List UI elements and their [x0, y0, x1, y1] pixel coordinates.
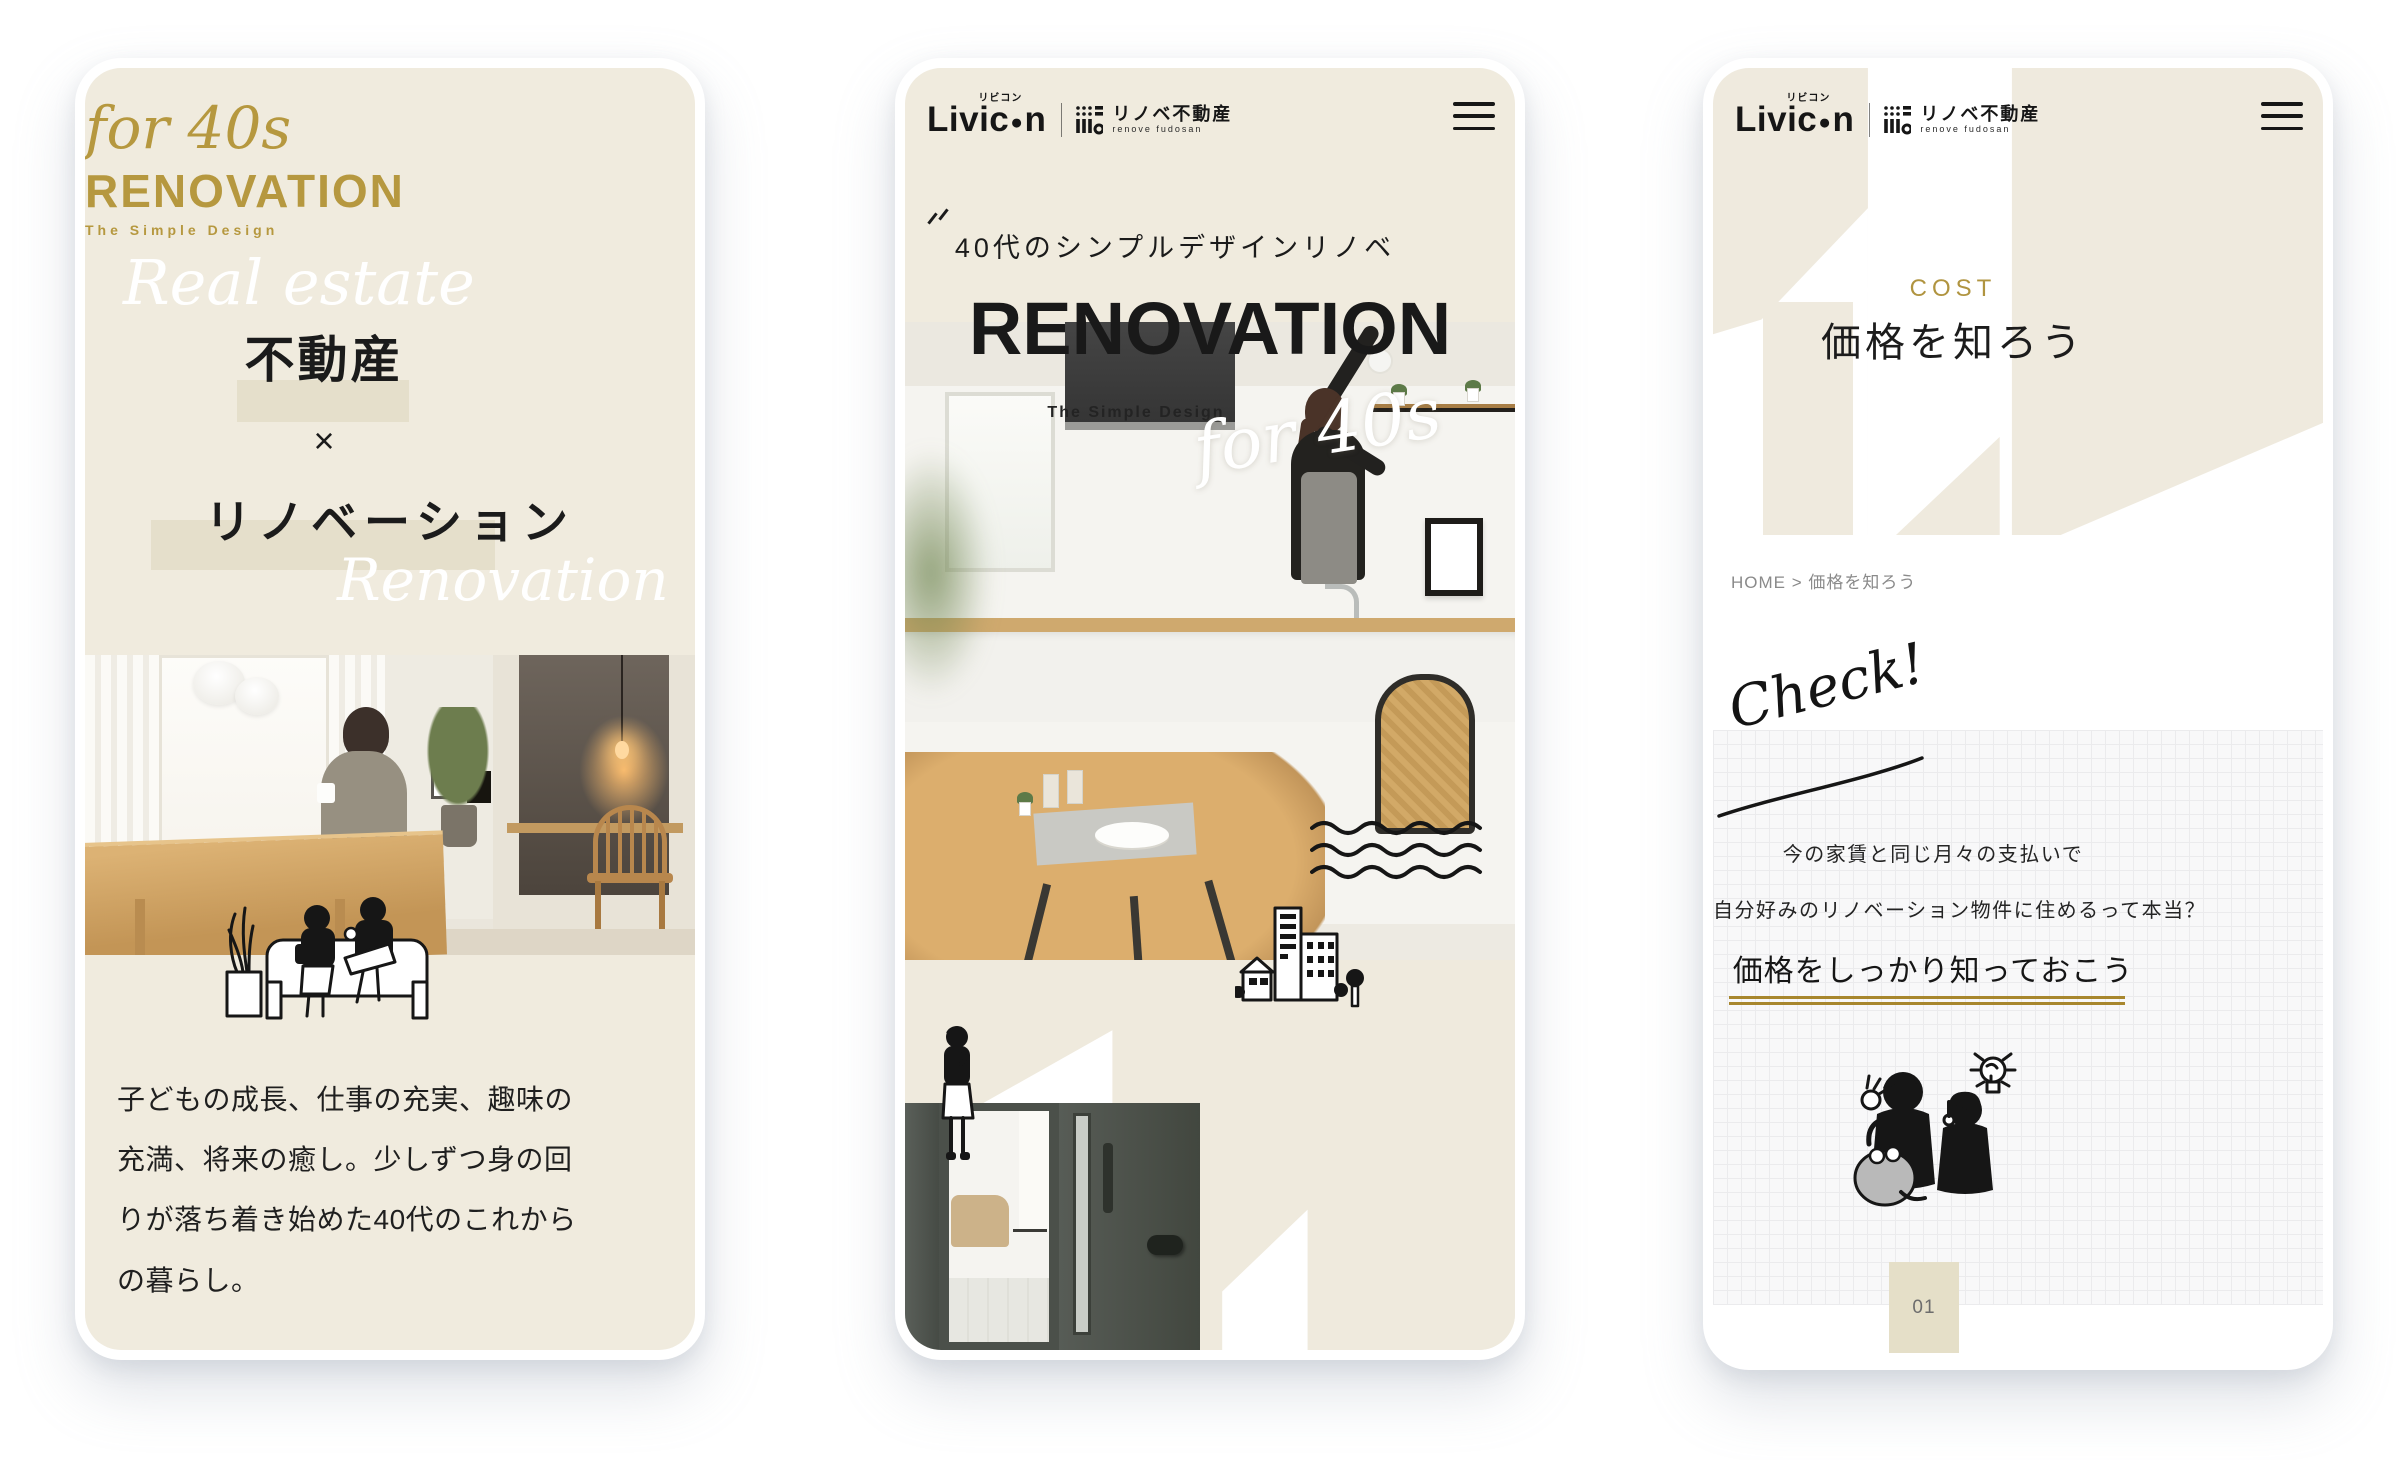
glass: [1067, 770, 1083, 804]
wavy-lines-icon: [1310, 820, 1505, 882]
screen-cost-page: COST 価格を知ろう リビコン Livic●n リノベ不動産: [1713, 68, 2323, 1360]
door-panel: [1059, 1103, 1200, 1350]
section-heading: 価格を知ろう: [1713, 310, 2193, 368]
catch-copy: 40代のシンプルデザインリノベ: [905, 226, 1445, 265]
partner-logo[interactable]: リノベ不動産 renove fudosan: [1112, 105, 1232, 135]
lead-text-1: 今の家賃と同じ月々の支払いで: [1713, 838, 2153, 867]
logo-text: n: [1832, 100, 1854, 140]
wooden-chair: [593, 805, 667, 875]
logo-dot-icon: ●: [1010, 111, 1023, 135]
town-illustration: [1235, 904, 1367, 1008]
lightbulb-icon: [1971, 1054, 2015, 1092]
tiled-floor: [949, 1278, 1049, 1342]
gold-double-rule: [1729, 996, 2125, 1005]
plate: [1095, 822, 1169, 848]
livicon-logo[interactable]: リビコン Livic●n: [927, 100, 1046, 140]
site-header: リビコン Livic●n リノベ不動産 renove fudosan: [927, 94, 1495, 146]
indoor-plant: [421, 707, 495, 817]
picture-frame: [1425, 518, 1483, 596]
hero-script-for40s: for 40s: [85, 94, 695, 162]
logo-text: Livic: [1735, 100, 1817, 140]
logo-dot-icon: ●: [1818, 111, 1831, 135]
standing-woman-illustration: [933, 1024, 981, 1172]
cross-symbol: ×: [85, 420, 563, 462]
phone-mockup-top-page: for 40s RENOVATION The Simple Design Rea…: [75, 58, 705, 1360]
check-script-text: Check!: [1722, 631, 1932, 742]
phone-mockup-hero-page: リビコン Livic●n リノベ不動産 renove fudosan 40代のシ…: [895, 58, 1525, 1360]
script-real-estate: Real estate: [123, 246, 475, 319]
rattan-chair: [1375, 674, 1475, 834]
logo-text: n: [1024, 100, 1046, 140]
breadcrumb-home-link[interactable]: HOME: [1731, 573, 1786, 592]
hero-title-renovation: RENOVATION: [905, 286, 1515, 371]
bottom-white-band: [1713, 1305, 2323, 1360]
screen-hero-page: リビコン Livic●n リノベ不動産 renove fudosan 40代のシ…: [905, 68, 1515, 1350]
intro-paragraph: 子どもの成長、仕事の充実、趣味の充満、将来の癒し。少しずつ身の回りが落ち着き始め…: [117, 1070, 595, 1311]
page-number-tab: 01: [1889, 1262, 1959, 1353]
renove-fudosan-mark-icon: [1883, 105, 1911, 135]
pendant-cord: [621, 655, 623, 741]
plant-pot: [441, 805, 477, 847]
door-window-slit: [1073, 1113, 1091, 1335]
faucet: [1325, 584, 1359, 618]
check-underline-swoosh: [1717, 750, 1927, 820]
desk-nook: [493, 655, 695, 955]
mug: [317, 783, 335, 803]
keyword-renovation-jp: リノベーション: [85, 486, 695, 552]
renove-fudosan-mark-icon: [1075, 105, 1103, 135]
menu-hamburger-icon[interactable]: [2261, 102, 2303, 130]
sofa-couple-illustration: [205, 874, 445, 1024]
pendant-lamp: [235, 677, 279, 715]
partner-logo[interactable]: リノベ不動産 renove fudosan: [1920, 105, 2040, 135]
livicon-logo[interactable]: リビコン Livic●n: [1735, 100, 1854, 140]
door-handle-plate: [1103, 1143, 1113, 1213]
logo-ruby: リビコン: [978, 89, 1022, 104]
door-handle: [1147, 1235, 1183, 1255]
site-header: リビコン Livic●n リノベ不動産 renove fudosan: [1735, 94, 2303, 146]
emphasis-text: 価格をしっかり知っておこう: [1713, 946, 2153, 990]
check-annotation: Check!: [1727, 654, 1927, 719]
logo-divider: [1869, 103, 1870, 137]
partner-subtitle: renove fudosan: [1112, 125, 1232, 135]
keyword-fudosan: 不動産: [85, 320, 563, 392]
logo-ruby: リビコン: [1786, 89, 1830, 104]
breadcrumb-current: 価格を知ろう: [1808, 573, 1916, 592]
logo-text: Livic: [927, 100, 1009, 140]
partner-name: リノベ不動産: [1112, 105, 1232, 125]
woman-apron: [1301, 472, 1357, 584]
menu-hamburger-icon[interactable]: [1453, 102, 1495, 130]
logo-divider: [1061, 103, 1062, 137]
hero-subtitle: The Simple Design: [85, 222, 695, 238]
hero-title-renovation: RENOVATION: [85, 164, 695, 218]
table-leg: [135, 899, 145, 955]
sofa: [951, 1195, 1009, 1247]
curtain: [1019, 1111, 1049, 1231]
lead-text-2: 自分好みのリノベーション物件に住めるって本当？: [1713, 894, 2153, 923]
counter-ledge: [905, 618, 1515, 632]
plant-pot: [1019, 802, 1031, 816]
script-renovation: Renovation: [337, 546, 669, 614]
partner-subtitle: renove fudosan: [1920, 125, 2040, 135]
plant-pot: [1467, 388, 1479, 402]
small-table: [1013, 1229, 1047, 1232]
couple-ok-illustration: [1841, 1044, 2021, 1234]
partner-name: リノベ不動産: [1920, 105, 2040, 125]
section-eyebrow-cost: COST: [1713, 275, 2193, 303]
foreground-plant-blur: [905, 448, 991, 698]
phone-mockup-cost-page: COST 価格を知ろう リビコン Livic●n リノベ不動産: [1703, 58, 2333, 1370]
page-number: 01: [1912, 1297, 1935, 1319]
breadcrumb: HOME > 価格を知ろう: [1731, 568, 1916, 593]
light-bulb: [615, 741, 629, 759]
glass: [1043, 774, 1059, 808]
breadcrumb-separator: >: [1792, 573, 1803, 592]
screen-top-page: for 40s RENOVATION The Simple Design Rea…: [85, 68, 695, 1350]
